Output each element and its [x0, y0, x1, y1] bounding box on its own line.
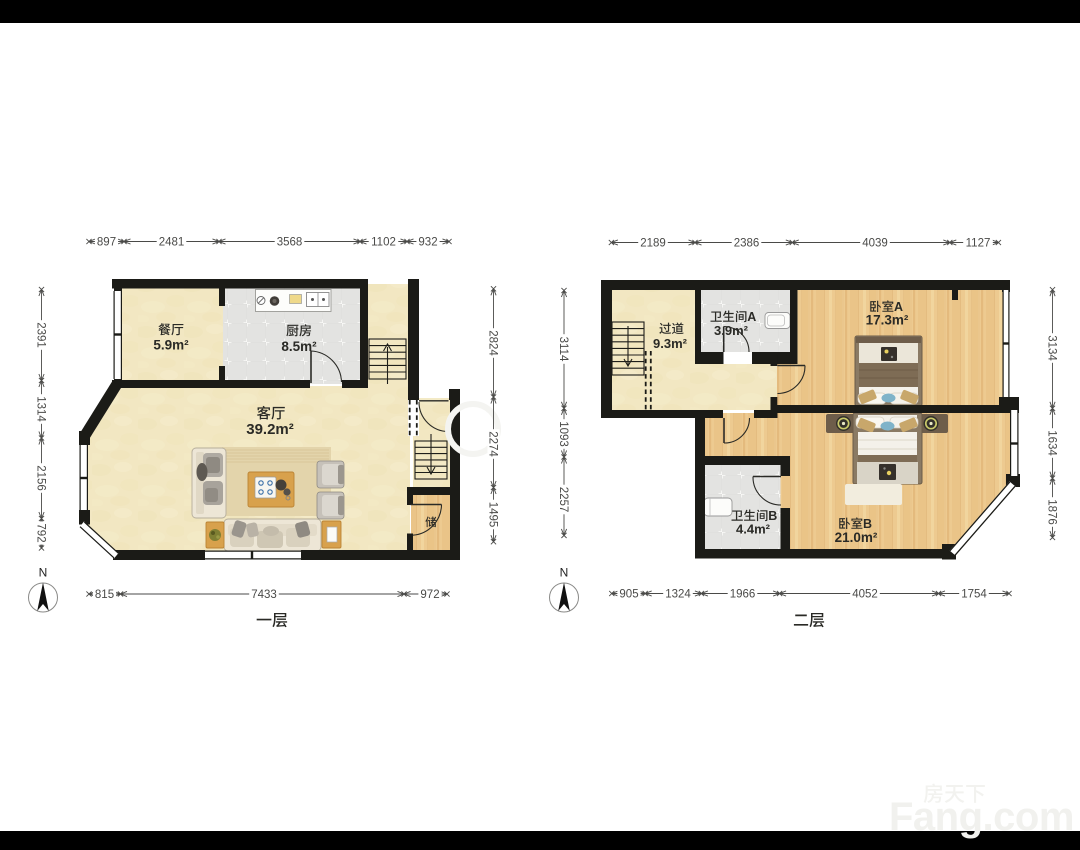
- svg-text:1876: 1876: [1046, 499, 1058, 525]
- svg-text:9.3m²: 9.3m²: [653, 336, 688, 351]
- svg-text:1127: 1127: [966, 238, 991, 250]
- svg-text:2481: 2481: [159, 237, 185, 249]
- svg-text:8.5m²: 8.5m²: [281, 339, 317, 354]
- svg-text:792: 792: [35, 523, 47, 542]
- svg-text:2189: 2189: [640, 238, 666, 250]
- svg-text:4039: 4039: [862, 238, 888, 250]
- svg-text:3.9m²: 3.9m²: [714, 323, 749, 338]
- svg-text:3114: 3114: [557, 337, 569, 362]
- svg-text:2824: 2824: [487, 330, 499, 356]
- svg-text:1314: 1314: [35, 396, 47, 422]
- svg-text:897: 897: [97, 237, 116, 249]
- svg-text:2386: 2386: [734, 238, 760, 250]
- svg-text:1754: 1754: [961, 589, 987, 601]
- svg-text:N: N: [39, 566, 48, 580]
- svg-text:2257: 2257: [557, 487, 569, 513]
- svg-text:932: 932: [418, 237, 437, 249]
- svg-text:1966: 1966: [730, 589, 756, 601]
- svg-text:1634: 1634: [1046, 430, 1058, 456]
- svg-text:2391: 2391: [35, 322, 47, 348]
- svg-text:39.2m²: 39.2m²: [246, 421, 294, 438]
- svg-text:N: N: [560, 566, 569, 580]
- svg-text:1495: 1495: [487, 502, 499, 528]
- svg-text:5.9m²: 5.9m²: [153, 338, 189, 353]
- svg-text:1324: 1324: [665, 589, 691, 601]
- svg-text:Fang.com: Fang.com: [889, 795, 1074, 839]
- svg-text:972: 972: [420, 589, 439, 601]
- svg-text:B: B: [863, 517, 872, 531]
- svg-text:4052: 4052: [852, 589, 878, 601]
- svg-text:21.0m²: 21.0m²: [835, 530, 878, 545]
- svg-text:4.4m²: 4.4m²: [736, 522, 771, 537]
- svg-text:2274: 2274: [487, 431, 499, 457]
- svg-text:3568: 3568: [277, 237, 303, 249]
- svg-text:1093: 1093: [557, 421, 569, 447]
- svg-text:7433: 7433: [251, 589, 277, 601]
- svg-text:17.3m²: 17.3m²: [866, 313, 909, 328]
- svg-text:2156: 2156: [35, 465, 47, 491]
- svg-text:905: 905: [619, 589, 638, 601]
- svg-text:A: A: [747, 310, 756, 324]
- svg-text:815: 815: [95, 589, 114, 601]
- svg-text:1102: 1102: [371, 237, 396, 249]
- svg-text:3134: 3134: [1046, 335, 1058, 361]
